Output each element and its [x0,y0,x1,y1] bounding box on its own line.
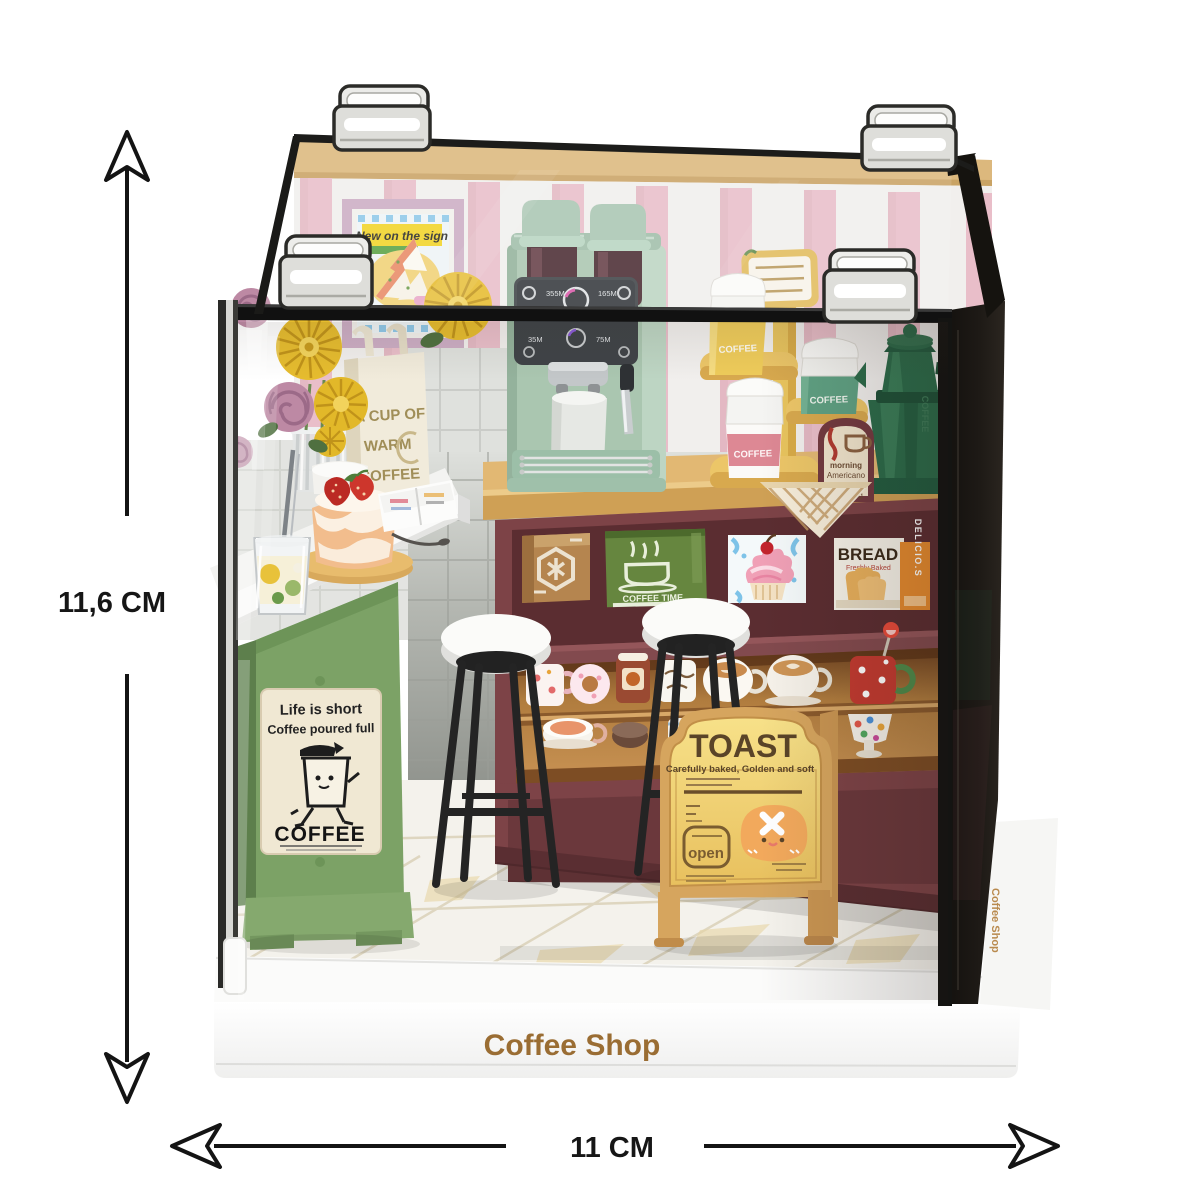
svg-text:WARM: WARM [364,436,412,455]
svg-text:Life is short: Life is short [280,701,363,718]
svg-text:open: open [688,845,724,862]
svg-text:COFFEE: COFFEE [274,823,365,846]
svg-text:Coffee poured full: Coffee poured full [267,721,374,737]
svg-text:11 CM: 11 CM [570,1132,654,1164]
svg-text:Coffee Shop: Coffee Shop [989,888,1001,953]
svg-text:11,6 CM: 11,6 CM [58,587,166,619]
svg-text:Coffee Shop: Coffee Shop [484,1029,661,1062]
